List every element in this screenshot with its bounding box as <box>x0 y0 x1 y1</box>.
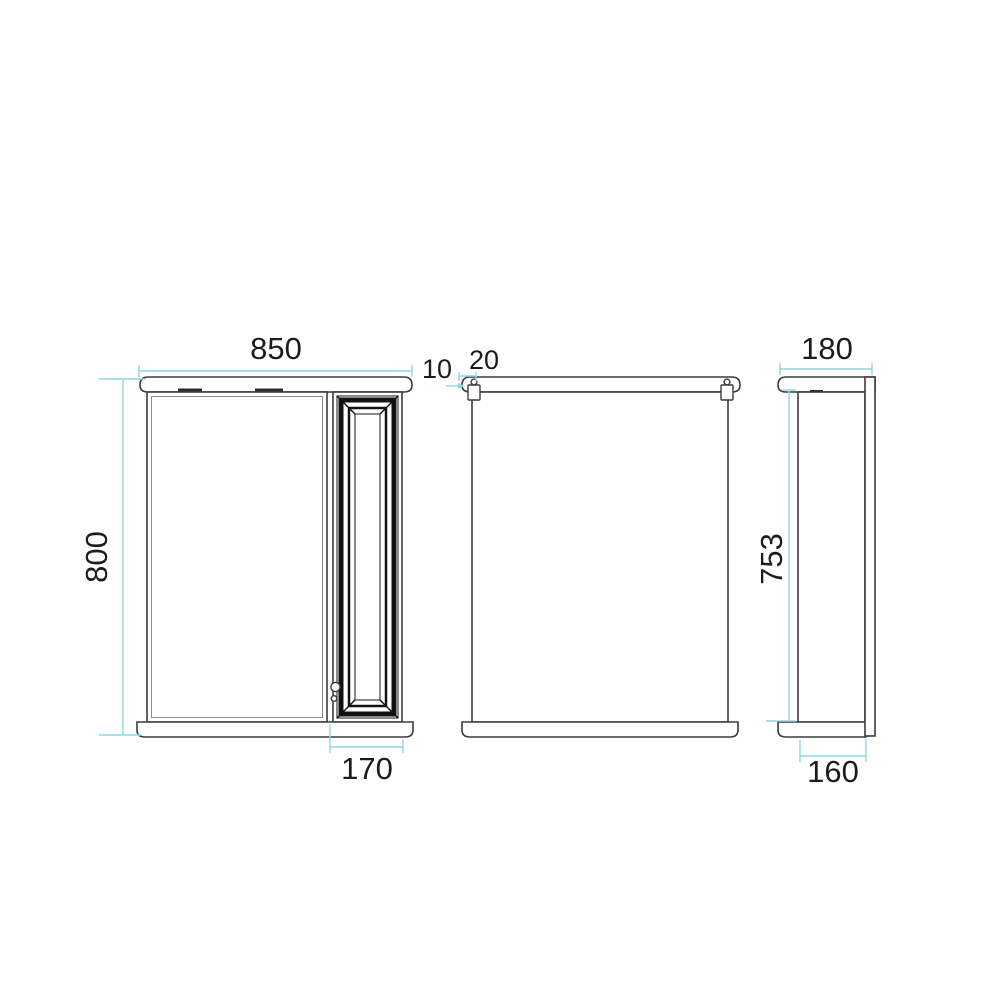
front-bottom-base <box>137 722 413 737</box>
cabinet-door-edge <box>337 396 398 718</box>
hanger-right-hole <box>724 379 730 385</box>
dim-side-depth-label: 180 <box>787 332 867 366</box>
dim-back-height-label: 753 <box>755 519 789 599</box>
back-view <box>462 377 740 737</box>
dim-hanger-side-offset-label: 20 <box>461 345 507 375</box>
dim-hanger-top-offset-label: 10 <box>414 354 460 384</box>
door-knob-hook <box>331 696 337 702</box>
door-knob <box>331 682 340 691</box>
dim-front-height-label: 800 <box>80 517 114 597</box>
back-top-rail <box>462 377 740 392</box>
drawing-canvas: 850 800 170 10 20 753 180 160 <box>0 0 1000 1000</box>
back-bottom-base <box>462 722 738 737</box>
hanger-right-plate <box>721 385 733 400</box>
dim-front-width-label: 850 <box>236 332 316 366</box>
back-body <box>472 392 728 722</box>
linework-layer <box>0 0 1000 1000</box>
side-body <box>798 392 865 722</box>
side-back-panel <box>865 377 875 736</box>
side-view <box>778 377 875 737</box>
dim-door-width-label: 170 <box>327 752 407 786</box>
front-view <box>137 377 413 737</box>
side-bottom-base <box>778 722 866 737</box>
dim-side-base-depth-label: 160 <box>793 755 873 789</box>
hanger-left-plate <box>468 385 480 400</box>
front-mirror-panel <box>147 392 327 722</box>
dim-850-line <box>139 365 412 377</box>
